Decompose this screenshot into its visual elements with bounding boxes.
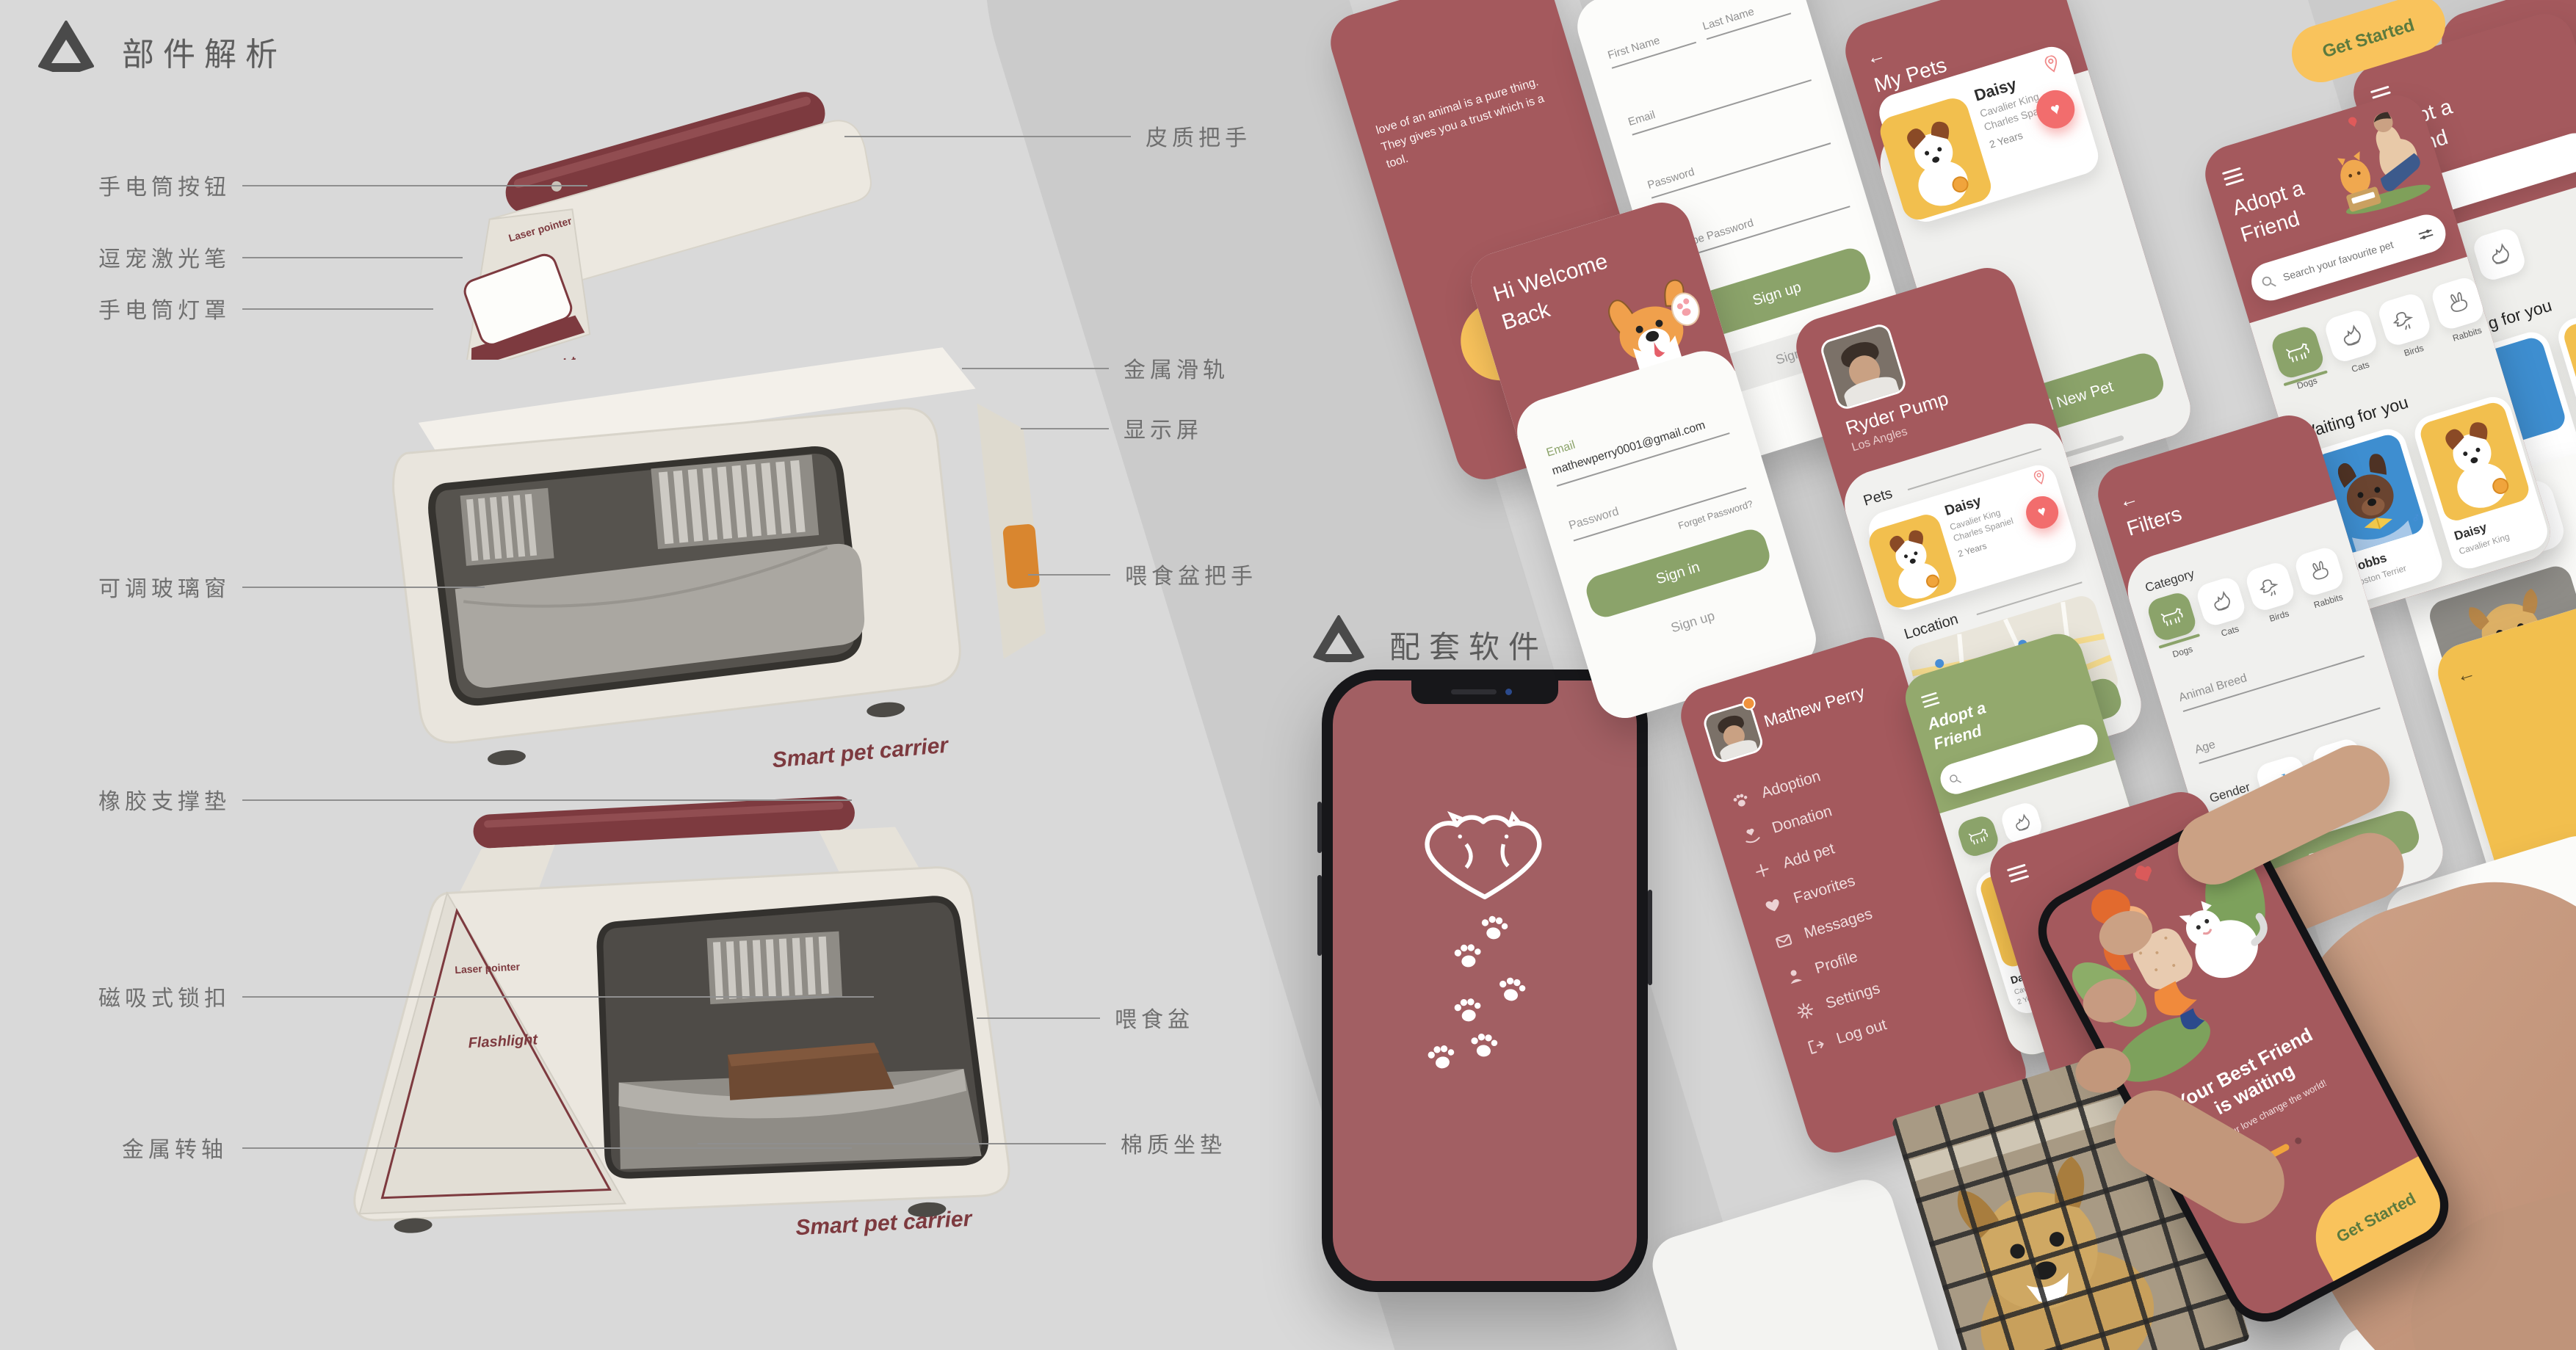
menu-user-name: Mathew Perry — [1762, 682, 1867, 731]
favorite-heart-button[interactable]: ♥ — [2022, 492, 2063, 532]
menu-item-label: Profile — [1813, 948, 1860, 978]
pet-photo-daisy — [1866, 511, 1960, 611]
part-label-rubber-pad: 橡胶支撑垫 — [98, 783, 231, 816]
phone-screen-splash — [1333, 681, 1637, 1281]
callout-line — [242, 1147, 852, 1149]
logout-icon — [1805, 1035, 1827, 1057]
callout-line — [698, 1143, 1106, 1144]
email-label: Email — [1545, 439, 1577, 460]
callout-line — [844, 136, 1131, 137]
search-icon — [2260, 274, 2276, 290]
phone-speaker — [1451, 689, 1497, 694]
callout-line — [962, 368, 1109, 369]
part-label-glass-window: 可调玻璃窗 — [98, 570, 231, 603]
email-field[interactable]: Email — [1627, 62, 1809, 128]
location-pin-icon — [2043, 54, 2061, 75]
paw-print-icon — [1467, 1031, 1501, 1059]
back-arrow-icon[interactable]: ← — [1864, 44, 1887, 68]
bird-icon — [2257, 574, 2283, 599]
category-birds[interactable]: Birds — [2243, 560, 2303, 633]
search-icon — [1948, 772, 1962, 786]
part-label-laser-pen: 逗宠激光笔 — [98, 241, 231, 273]
dog-icon — [2282, 338, 2312, 367]
paw-print-icon — [1450, 940, 1486, 970]
part-label-metal-rail: 金属滑轨 — [1124, 352, 1229, 384]
menu-item-label: Donation — [1770, 802, 1834, 838]
paw-print-icon — [1450, 994, 1486, 1025]
product-flashlight-module: Laser pointer Flashlight — [382, 44, 969, 360]
category-dogs[interactable]: Dogs — [2269, 324, 2330, 395]
envelope-icon — [1773, 929, 1795, 951]
pet-photo-daisy — [2417, 399, 2532, 523]
product-carrier-assembled: Laser pointer Flashlight Smart pet carri… — [272, 771, 1094, 1314]
pets-heart-logo — [1415, 809, 1555, 904]
get-started-label: Get Started — [2320, 15, 2417, 63]
paw-print-icon — [1423, 1040, 1460, 1072]
category-dogs[interactable] — [1955, 813, 2001, 859]
get-started-label: Get Started — [2333, 1189, 2419, 1247]
part-label-flashlight-button: 手电筒按钮 — [98, 169, 231, 201]
back-arrow-icon[interactable]: ← — [2116, 487, 2140, 511]
pet-age: 2 Years — [1988, 129, 2024, 150]
forgot-password-link[interactable]: Forget Password? — [1677, 498, 1754, 531]
category-dogs[interactable]: Dogs — [2145, 590, 2204, 663]
part-label-magnetic-lock: 磁吸式锁扣 — [98, 980, 231, 1012]
part-label-metal-hinge: 金属转轴 — [122, 1131, 228, 1164]
part-label-leather-handle: 皮质把手 — [1146, 120, 1251, 152]
software-section-title: 配套软件 — [1389, 623, 1548, 667]
password-field[interactable]: Password — [1646, 125, 1829, 192]
cat-icon — [2485, 241, 2514, 269]
adopt-illustration — [2305, 96, 2440, 227]
filter-sliders-icon[interactable] — [2417, 226, 2436, 242]
callout-line — [1028, 574, 1110, 576]
signin-button-label: Sign in — [1654, 559, 1701, 588]
brand-triangle-logo — [1313, 615, 1364, 662]
callout-line — [242, 799, 852, 801]
callout-line — [242, 257, 463, 258]
part-label-cotton-cushion: 棉质坐垫 — [1121, 1127, 1226, 1159]
cat-icon — [2207, 589, 2235, 615]
callout-line — [1021, 428, 1109, 429]
cat-icon — [2010, 812, 2033, 835]
part-label-bowl-handle: 喂食盆把手 — [1125, 558, 1257, 590]
menu-item-label: Add pet — [1781, 840, 1837, 872]
menu-item-label: Log out — [1834, 1016, 1889, 1048]
callout-line — [242, 996, 874, 998]
product-carrier-open: Smart pet carrier — [345, 316, 1109, 844]
paw-icon — [1730, 789, 1752, 811]
category-rabbits[interactable]: Rabbits — [2293, 545, 2352, 617]
svg-text:Smart pet carrier: Smart pet carrier — [795, 1207, 974, 1241]
person-icon — [1784, 965, 1806, 987]
menu-item-label: Adoption — [1759, 768, 1823, 802]
rabbit-icon — [2444, 289, 2471, 316]
cat-icon — [2337, 322, 2365, 350]
callout-line — [977, 1017, 1100, 1019]
hand-heart-icon — [1740, 824, 1762, 846]
paw-print-icon — [1494, 973, 1530, 1004]
phone-side-button[interactable] — [1317, 802, 1322, 853]
search-input[interactable] — [2280, 232, 2413, 284]
bird-icon — [2390, 306, 2419, 333]
brand-triangle-logo — [38, 21, 94, 72]
part-label-feeding-bowl: 喂食盆 — [1115, 1001, 1194, 1034]
favorite-heart-button[interactable]: ♥ — [2032, 85, 2080, 133]
rabbit-icon — [2307, 559, 2332, 584]
callout-line — [242, 308, 433, 310]
menu-avatar — [1701, 701, 1765, 765]
plus-icon — [1751, 860, 1773, 882]
part-label-display: 显示屏 — [1124, 412, 1203, 444]
parts-section-title: 部件解析 — [122, 28, 286, 75]
callout-line — [242, 185, 587, 186]
hamburger-menu-icon[interactable] — [2005, 860, 2030, 886]
phone-volume-button[interactable] — [1317, 875, 1322, 956]
phone-power-button[interactable] — [1648, 890, 1652, 985]
callout-line — [242, 587, 485, 588]
signup-button-label: Sign up — [1751, 279, 1803, 310]
hamburger-menu-icon[interactable] — [2221, 164, 2245, 189]
svg-text:Smart pet carrier: Smart pet carrier — [771, 733, 950, 772]
category-birds[interactable]: Birds — [2376, 291, 2437, 363]
poster-canvas: 部件解析 Laser pointer Flashlight — [0, 0, 2576, 1350]
category-cats[interactable]: Cats — [2323, 308, 2384, 379]
category-cats[interactable]: Cats — [2194, 575, 2254, 647]
paw-print-icon — [1477, 912, 1513, 943]
dog-icon — [2157, 603, 2186, 630]
hamburger-menu-icon[interactable] — [1920, 689, 1941, 711]
pet-age: 2 Years — [1957, 540, 1988, 559]
menu-item-label: Messages — [1802, 905, 1875, 943]
category-cats[interactable] — [2471, 226, 2528, 283]
part-label-lamp-cover: 手电筒灯罩 — [98, 292, 231, 324]
gear-icon — [1794, 1000, 1816, 1022]
menu-item-label: Favorites — [1792, 872, 1858, 907]
dog-icon — [1966, 825, 1991, 848]
phone-notch — [1411, 681, 1558, 704]
heart-icon — [1762, 895, 1784, 917]
phone-mockup — [1322, 669, 1648, 1292]
menu-item-label: Settings — [1824, 980, 1883, 1013]
pets-section-label: Pets — [1862, 485, 1895, 510]
location-pin-icon — [2033, 469, 2047, 487]
phone-camera — [1505, 689, 1512, 695]
profile-avatar — [1818, 322, 1908, 411]
